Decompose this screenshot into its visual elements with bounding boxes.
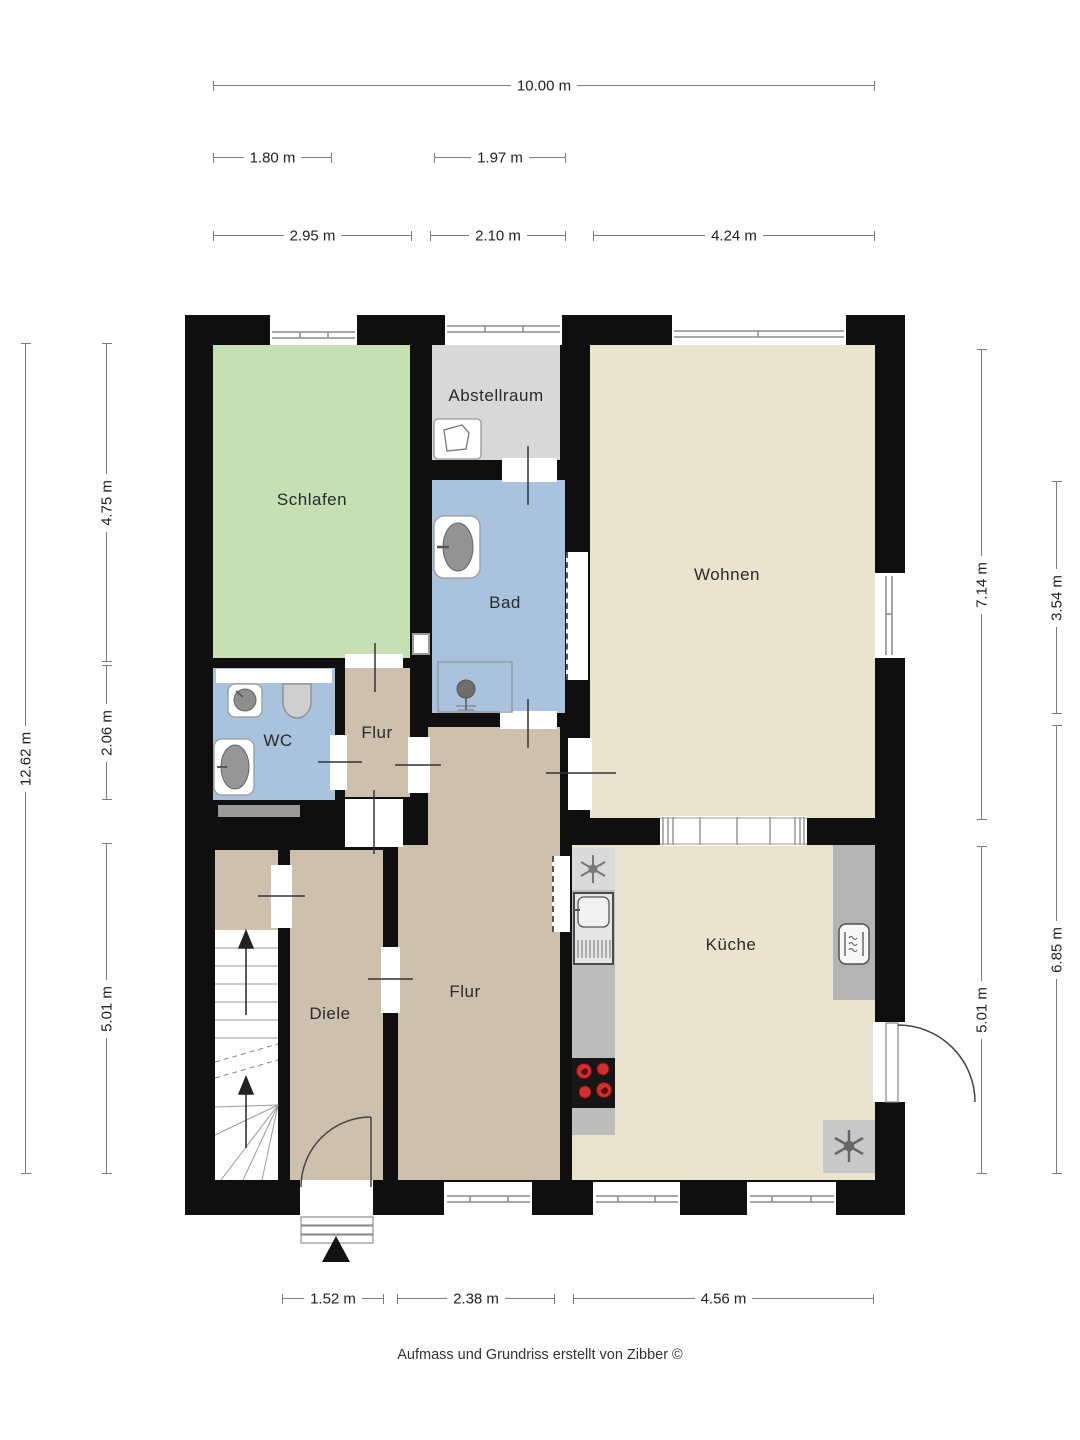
chimney-niche [412, 633, 430, 655]
label-schlafen: Schlafen [277, 490, 347, 510]
kitchen-counter-right [833, 845, 875, 1000]
label-flur-main: Flur [449, 982, 480, 1002]
dim-top-210: 2.10 m [430, 235, 566, 236]
entrance-steps [301, 1217, 373, 1243]
kitchen-vent-corner [823, 1120, 875, 1173]
dim-right-714: 7.14 m [981, 349, 982, 820]
dim-bottom-238: 2.38 m [397, 1298, 555, 1299]
dim-left-206: 2.06 m [106, 665, 107, 800]
north-arrow-icon [322, 1236, 350, 1262]
window-schlafen-top [270, 315, 357, 345]
window-wohnen-right [875, 573, 905, 658]
label-wohnen: Wohnen [694, 565, 760, 585]
door-schlafen-flur [345, 654, 403, 668]
label-flur-small: Flur [361, 723, 392, 743]
dim-right-685: 6.85 m [1056, 725, 1057, 1174]
kitchen-vent-top [572, 848, 615, 890]
door-kueche-exterior [873, 1022, 907, 1102]
label-abstellraum: Abstellraum [448, 386, 543, 406]
door-flur-small-flur [408, 737, 430, 793]
room-flur-bottom [398, 845, 560, 1180]
dim-bottom-456: 4.56 m [573, 1298, 874, 1299]
label-wc: WC [263, 731, 292, 751]
label-bad: Bad [489, 593, 521, 613]
flur-radiator [552, 856, 570, 932]
kitchen-stove-unit [572, 1058, 615, 1108]
bad-radiator [566, 552, 588, 680]
door-bad-flur [500, 711, 557, 729]
stair-landing [215, 850, 278, 930]
window-flur-bottom [444, 1182, 532, 1215]
door-wohnen-flur [568, 738, 592, 810]
label-diele: Diele [309, 1004, 350, 1024]
label-kueche: Küche [706, 935, 757, 955]
dim-top-180: 1.80 m [213, 157, 332, 158]
dim-bottom-152: 1.52 m [282, 1298, 384, 1299]
wc-window-band [216, 669, 332, 683]
dim-top-197: 1.97 m [434, 157, 566, 158]
dim-left-total: 12.62 m [25, 343, 26, 1174]
door-landing-diele [271, 865, 292, 928]
stairwell [215, 930, 278, 1180]
window-wohnen-top [672, 315, 846, 345]
footer-credit: Aufmass und Grundriss erstellt von Zibbe… [397, 1347, 683, 1363]
dim-top-total: 10.00 m [213, 85, 875, 86]
opening-wohnen-kueche [660, 816, 807, 846]
window-kueche-bottom-2 [747, 1182, 836, 1215]
dim-top-295: 2.95 m [213, 235, 412, 236]
dim-right-501: 5.01 m [981, 846, 982, 1174]
door-wc-flur [330, 735, 347, 790]
floorplan-page: 10.00 m 1.80 m 1.97 m 2.95 m 2.10 m 4.24… [0, 0, 1080, 1440]
door-entrance [300, 1180, 373, 1217]
door-flur-small-diele [345, 799, 403, 847]
door-diele-flur [381, 947, 400, 1013]
wc-shelf-strip [218, 805, 300, 817]
dim-top-424: 4.24 m [593, 235, 875, 236]
kitchen-sink-unit [573, 892, 614, 965]
dim-right-354: 3.54 m [1056, 481, 1057, 714]
dim-left-501: 5.01 m [106, 843, 107, 1174]
door-abstellraum-bad [502, 458, 557, 482]
window-kueche-bottom-1 [593, 1182, 680, 1215]
window-abstellraum-top [445, 315, 562, 345]
room-flur-top [428, 727, 560, 845]
dim-left-475: 4.75 m [106, 343, 107, 662]
